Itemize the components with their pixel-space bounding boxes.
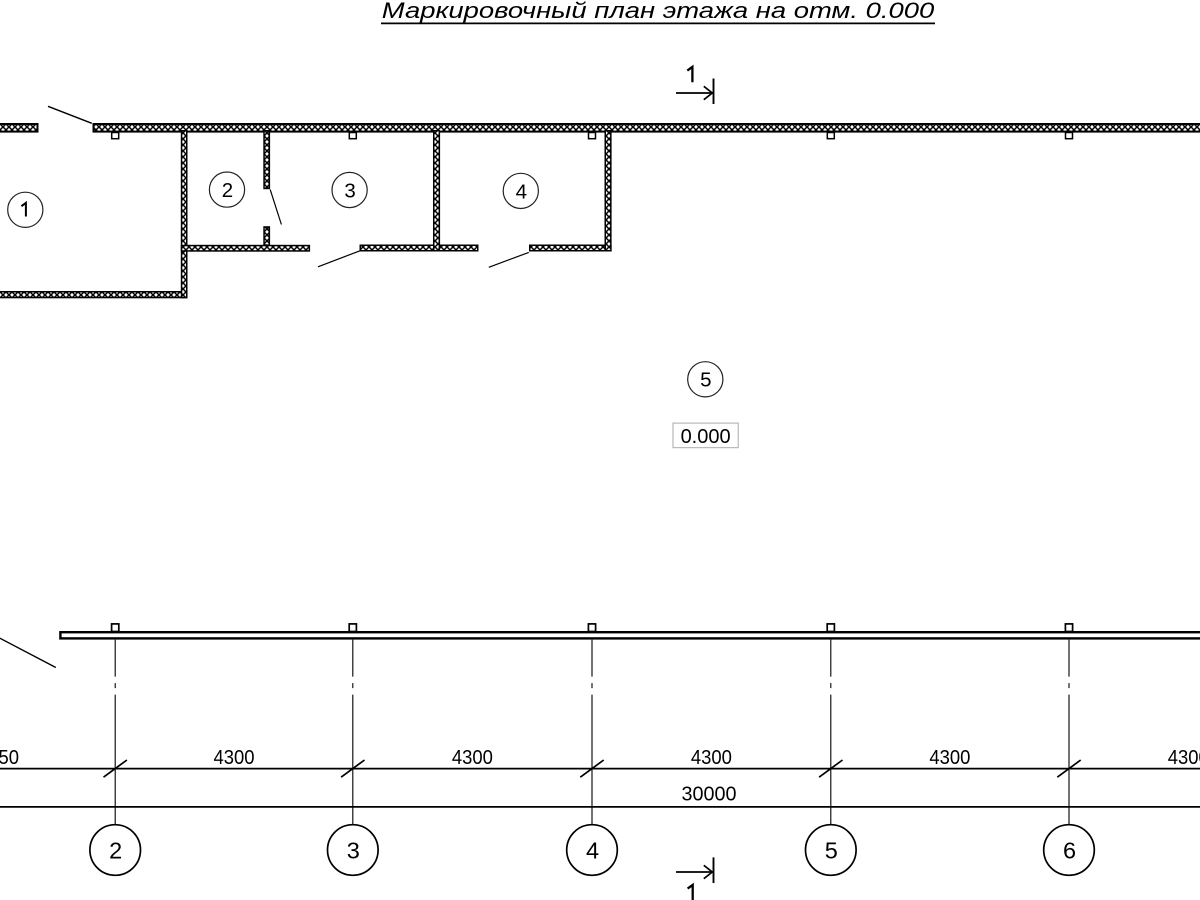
svg-text:30000: 30000: [682, 783, 737, 805]
svg-text:4300: 4300: [929, 747, 970, 769]
svg-text:5: 5: [700, 369, 711, 392]
svg-text:4: 4: [586, 837, 599, 863]
svg-text:2: 2: [222, 179, 233, 202]
svg-text:4300: 4300: [214, 747, 255, 769]
svg-text:4300: 4300: [691, 747, 732, 769]
svg-text:4: 4: [516, 180, 527, 203]
svg-text:3: 3: [344, 179, 355, 202]
svg-text:5: 5: [825, 837, 838, 863]
svg-text:0.000: 0.000: [681, 426, 731, 448]
svg-text:3: 3: [347, 837, 360, 863]
svg-text:1450: 1450: [0, 747, 19, 769]
svg-text:2: 2: [109, 837, 122, 863]
svg-text:4300: 4300: [452, 747, 493, 769]
svg-text:6: 6: [1063, 837, 1076, 863]
svg-text:Маркировочный план этажа на от: Маркировочный план этажа на отм. 0.000: [382, 0, 935, 24]
svg-text:4300: 4300: [1168, 747, 1200, 769]
